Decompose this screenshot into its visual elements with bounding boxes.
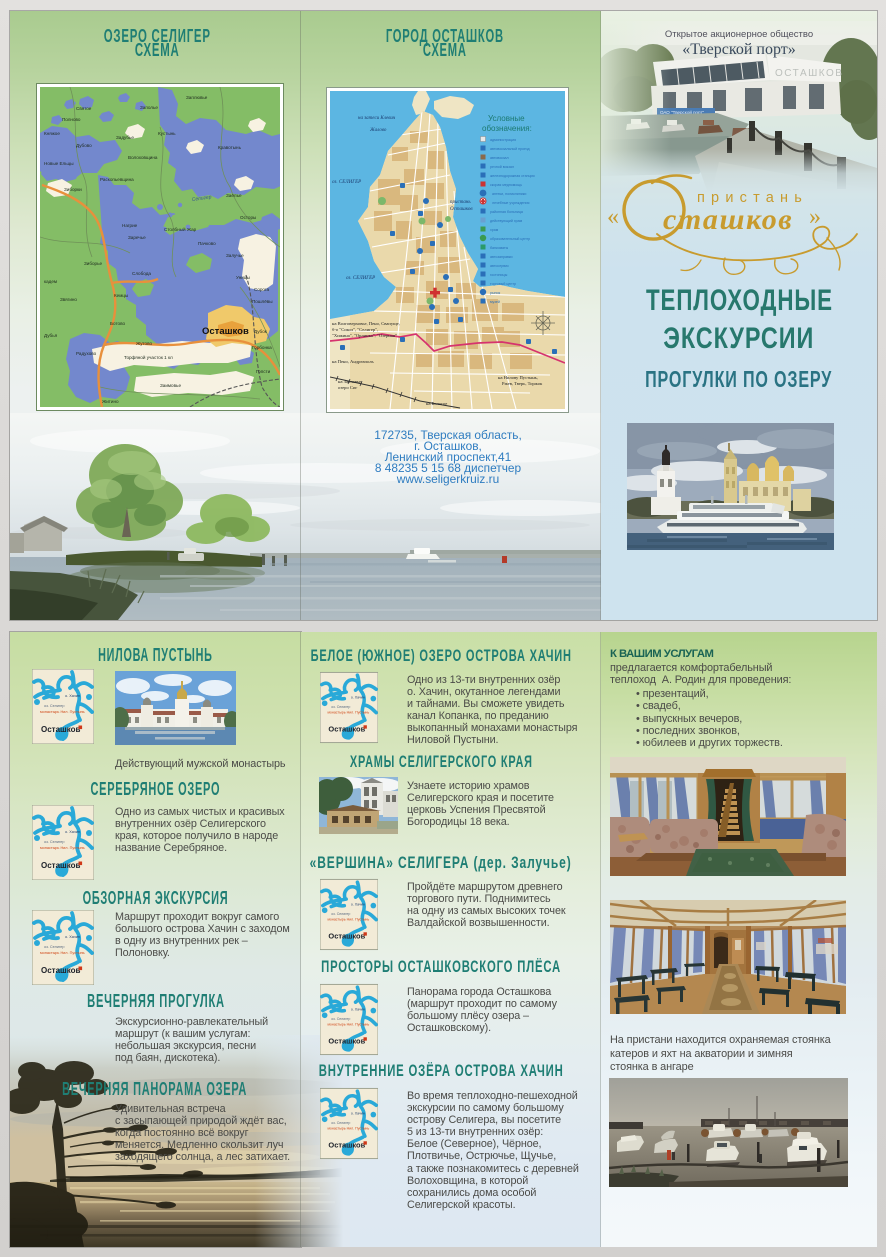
svg-text:Дубья: Дубья	[44, 333, 58, 338]
svg-text:обозначения:: обозначения:	[482, 124, 532, 133]
svg-text:музей: музей	[490, 300, 500, 304]
svg-text:Радухово: Радухово	[76, 351, 97, 356]
svg-text:оз. СЕЛИГЕР: оз. СЕЛИГЕР	[346, 276, 375, 281]
svg-text:Звягино: Звягино	[60, 297, 77, 302]
svg-text:аптеки, поликлиники: аптеки, поликлиники	[492, 192, 526, 196]
svg-text:Пошлёвы: Пошлёвы	[252, 299, 273, 304]
svg-text:«: «	[607, 204, 619, 230]
svg-text:Торфяной участок 1 кл: Торфяной участок 1 кл	[124, 354, 173, 360]
svg-text:кадем: кадем	[44, 279, 57, 284]
svg-text:Осторы: Осторы	[240, 215, 256, 220]
svg-text:банкоматы: банкоматы	[490, 246, 509, 250]
svg-text:Кравотынь: Кравотынь	[218, 145, 242, 150]
svg-text:Жутово: Жутово	[136, 341, 152, 346]
svg-text:Задубье: Задубье	[116, 135, 134, 140]
svg-text:гостиницы: гостиницы	[490, 273, 508, 277]
svg-text:Заёлье: Заёлье	[226, 193, 242, 198]
svg-text:речной вокзал: речной вокзал	[490, 165, 514, 169]
svg-text:Осташков: Осташков	[450, 207, 473, 212]
svg-text:Горбонка: Горбонка	[252, 345, 272, 350]
svg-text:озеро Сиг: озеро Сиг	[338, 385, 357, 390]
svg-text:железнодорожная станция: железнодорожная станция	[490, 174, 535, 178]
svg-text:Слобода: Слобода	[132, 271, 151, 276]
svg-text:автосервис: автосервис	[490, 264, 509, 268]
svg-text:образовательный центр: образовательный центр	[490, 237, 530, 241]
svg-text:Сорога: Сорога	[254, 287, 270, 292]
svg-text:администрация: администрация	[490, 138, 516, 142]
svg-text:на Бологое: на Бологое	[426, 401, 447, 406]
svg-text:автозаправки: автозаправки	[490, 255, 512, 259]
svg-text:Жалово: Жалово	[369, 128, 387, 133]
svg-text:Полново: Полново	[62, 117, 81, 122]
svg-text:Кемцы: Кемцы	[114, 293, 128, 298]
svg-text:рынок: рынок	[490, 291, 501, 295]
svg-text:Заимовье: Заимовье	[160, 383, 181, 388]
svg-text:Столбный Жар: Столбный Жар	[164, 226, 197, 232]
svg-text:Святое: Святое	[76, 106, 92, 111]
svg-text:»: »	[809, 204, 821, 230]
svg-text:автовокзал: автовокзал	[490, 156, 509, 160]
svg-text:храм: храм	[490, 228, 499, 232]
svg-text:Волоховщина: Волоховщина	[128, 155, 158, 160]
svg-text:оз. СЕЛИГЕР: оз. СЕЛИГЕР	[332, 180, 361, 185]
svg-text:автовокзальный проезд: автовокзальный проезд	[490, 147, 531, 151]
svg-text:Заполье: Заполье	[140, 105, 158, 110]
svg-text:действующий храм: действующий храм	[490, 219, 523, 223]
svg-text:пристань: пристань	[450, 200, 471, 205]
svg-text:Дубок: Дубок	[254, 329, 268, 334]
svg-text:Залучье: Залучье	[226, 253, 244, 258]
svg-text:Житино: Житино	[102, 399, 119, 404]
svg-text:Зиборки: Зиборки	[64, 187, 82, 192]
svg-text:Раскопьевщина: Раскопьевщина	[100, 177, 134, 182]
svg-text:торговый центр: торговый центр	[490, 282, 516, 286]
svg-text:Осташков: Осташков	[202, 326, 249, 337]
svg-text:районная больница: районная больница	[490, 210, 523, 214]
svg-text:Условные: Условные	[488, 114, 525, 123]
svg-text:Нагрие: Нагрие	[122, 223, 138, 228]
svg-text:Зиборье: Зиборье	[84, 261, 102, 266]
svg-text:Княжое: Княжое	[44, 131, 60, 136]
svg-text:Заречье: Заречье	[128, 235, 146, 240]
svg-text:лечебные учреждения: лечебные учреждения	[492, 201, 530, 205]
svg-text:Заплювье: Заплювье	[186, 95, 208, 100]
svg-text:на затеси Клевич: на затеси Клевич	[358, 116, 396, 121]
svg-text:скорая медпомощь: скорая медпомощь	[490, 183, 522, 187]
svg-text:Уницы: Уницы	[236, 275, 250, 280]
svg-text:Новые Ельцы: Новые Ельцы	[44, 161, 74, 166]
svg-text:ОСТАШКОВ: ОСТАШКОВ	[775, 68, 843, 79]
svg-text:Кустынь: Кустынь	[158, 131, 176, 136]
svg-text:Ботово: Ботово	[110, 321, 125, 326]
svg-text:Гопсти: Гопсти	[256, 369, 271, 374]
svg-text:Дубово: Дубово	[76, 143, 92, 148]
svg-text:Пачково: Пачково	[198, 241, 216, 246]
svg-text:сташков: сташков	[663, 203, 793, 236]
